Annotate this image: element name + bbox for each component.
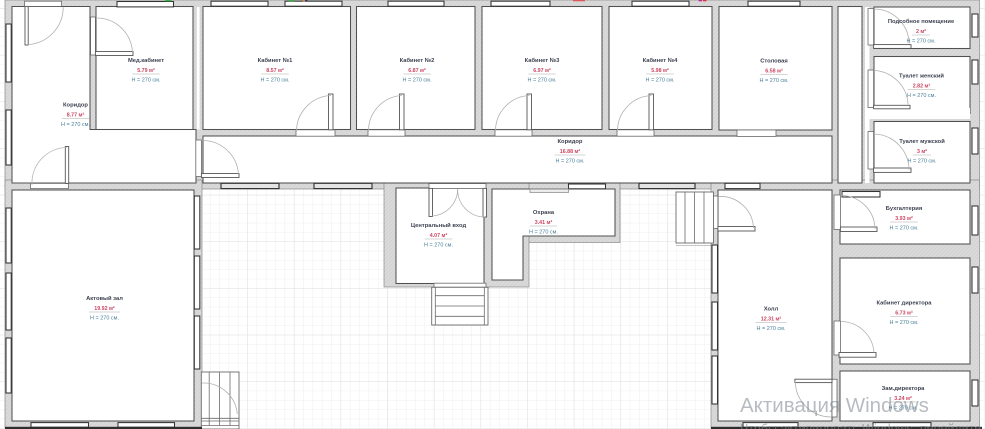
svg-text:Кабинет №4: Кабинет №4 — [643, 57, 679, 64]
svg-text:Зам.директора: Зам.директора — [882, 386, 926, 392]
svg-text:H = 270 см.: H = 270 см. — [907, 159, 936, 165]
svg-text:H = 270 см.: H = 270 см. — [889, 226, 918, 232]
svg-text:2 м²: 2 м² — [916, 29, 926, 35]
svg-text:Охрана: Охрана — [533, 210, 555, 216]
svg-text:H = 270 см.: H = 270 см. — [889, 320, 918, 326]
svg-text:Кабинет №3: Кабинет №3 — [525, 57, 561, 64]
svg-text:3.41 м²: 3.41 м² — [535, 220, 553, 226]
svg-text:Туалет женский: Туалет женский — [899, 73, 944, 80]
svg-text:Туалет мужской: Туалет мужской — [899, 138, 945, 145]
svg-text:3.93 м²: 3.93 м² — [895, 216, 913, 222]
svg-text:8.77 м²: 8.77 м² — [67, 113, 85, 119]
svg-text:H = 270 см.: H = 270 см. — [529, 230, 558, 236]
svg-text:Коридор: Коридор — [63, 103, 88, 109]
svg-text:6.87 м²: 6.87 м² — [408, 68, 426, 74]
svg-text:Столовая: Столовая — [760, 59, 788, 65]
svg-text:Холл: Холл — [764, 307, 779, 313]
svg-text:2.82 м²: 2.82 м² — [913, 84, 931, 90]
svg-text:H = 270 см.: H = 270 см. — [645, 78, 674, 84]
svg-text:H = 270 см.: H = 270 см. — [90, 316, 119, 322]
svg-text:Мед.кабинет: Мед.кабинет — [128, 57, 164, 64]
svg-text:H = 270 см.: H = 270 см. — [759, 78, 788, 84]
svg-text:5.79 м²: 5.79 м² — [137, 68, 155, 74]
svg-text:6.97 м²: 6.97 м² — [533, 68, 551, 74]
svg-text:Кабинет №1: Кабинет №1 — [258, 57, 294, 64]
svg-text:Кабинет директора: Кабинет директора — [876, 300, 932, 307]
svg-text:H = 270 см.: H = 270 см. — [906, 39, 935, 45]
svg-text:H = 270 см.: H = 270 см. — [555, 159, 584, 165]
svg-text:19.92 м²: 19.92 м² — [94, 306, 115, 312]
svg-text:H = 270 см.: H = 270 см. — [527, 78, 556, 84]
svg-text:Центральный вход: Центральный вход — [411, 222, 467, 229]
svg-text:16.88 м²: 16.88 м² — [560, 149, 581, 155]
svg-text:H = 270 см.: H = 270 см. — [402, 78, 431, 84]
svg-text:Подсобное помещение: Подсобное помещение — [888, 18, 955, 25]
svg-text:H = 270 см.: H = 270 см. — [260, 78, 289, 84]
svg-text:8.57 м²: 8.57 м² — [266, 68, 284, 74]
svg-text:Коридор: Коридор — [558, 139, 583, 145]
svg-text:3 м²: 3 м² — [917, 149, 927, 155]
svg-text:H = 270 см.: H = 270 см. — [756, 326, 785, 332]
svg-text:5.98 м²: 5.98 м² — [651, 68, 669, 74]
svg-text:H = 270 см.: H = 270 см. — [424, 243, 453, 249]
svg-text:Кабинет №2: Кабинет №2 — [400, 57, 435, 64]
svg-text:Активация Windows: Активация Windows — [740, 394, 929, 417]
svg-text:6.58 м²: 6.58 м² — [765, 69, 783, 75]
svg-text:H = 270 см.: H = 270 см. — [907, 93, 936, 99]
svg-text:Бухгалтерия: Бухгалтерия — [886, 206, 922, 212]
svg-text:4.07 м²: 4.07 м² — [430, 233, 448, 239]
svg-text:6.73 м²: 6.73 м² — [895, 311, 913, 317]
svg-text:H = 270 см.: H = 270 см. — [131, 78, 160, 84]
svg-text:12.31 м²: 12.31 м² — [761, 317, 782, 323]
svg-text:Актовый зал: Актовый зал — [86, 295, 123, 302]
svg-text:H = 270 см.: H = 270 см. — [61, 122, 90, 128]
svg-text:Чтобы активировать Windows, пе: Чтобы активировать Windows, перейдите в … — [740, 422, 985, 429]
